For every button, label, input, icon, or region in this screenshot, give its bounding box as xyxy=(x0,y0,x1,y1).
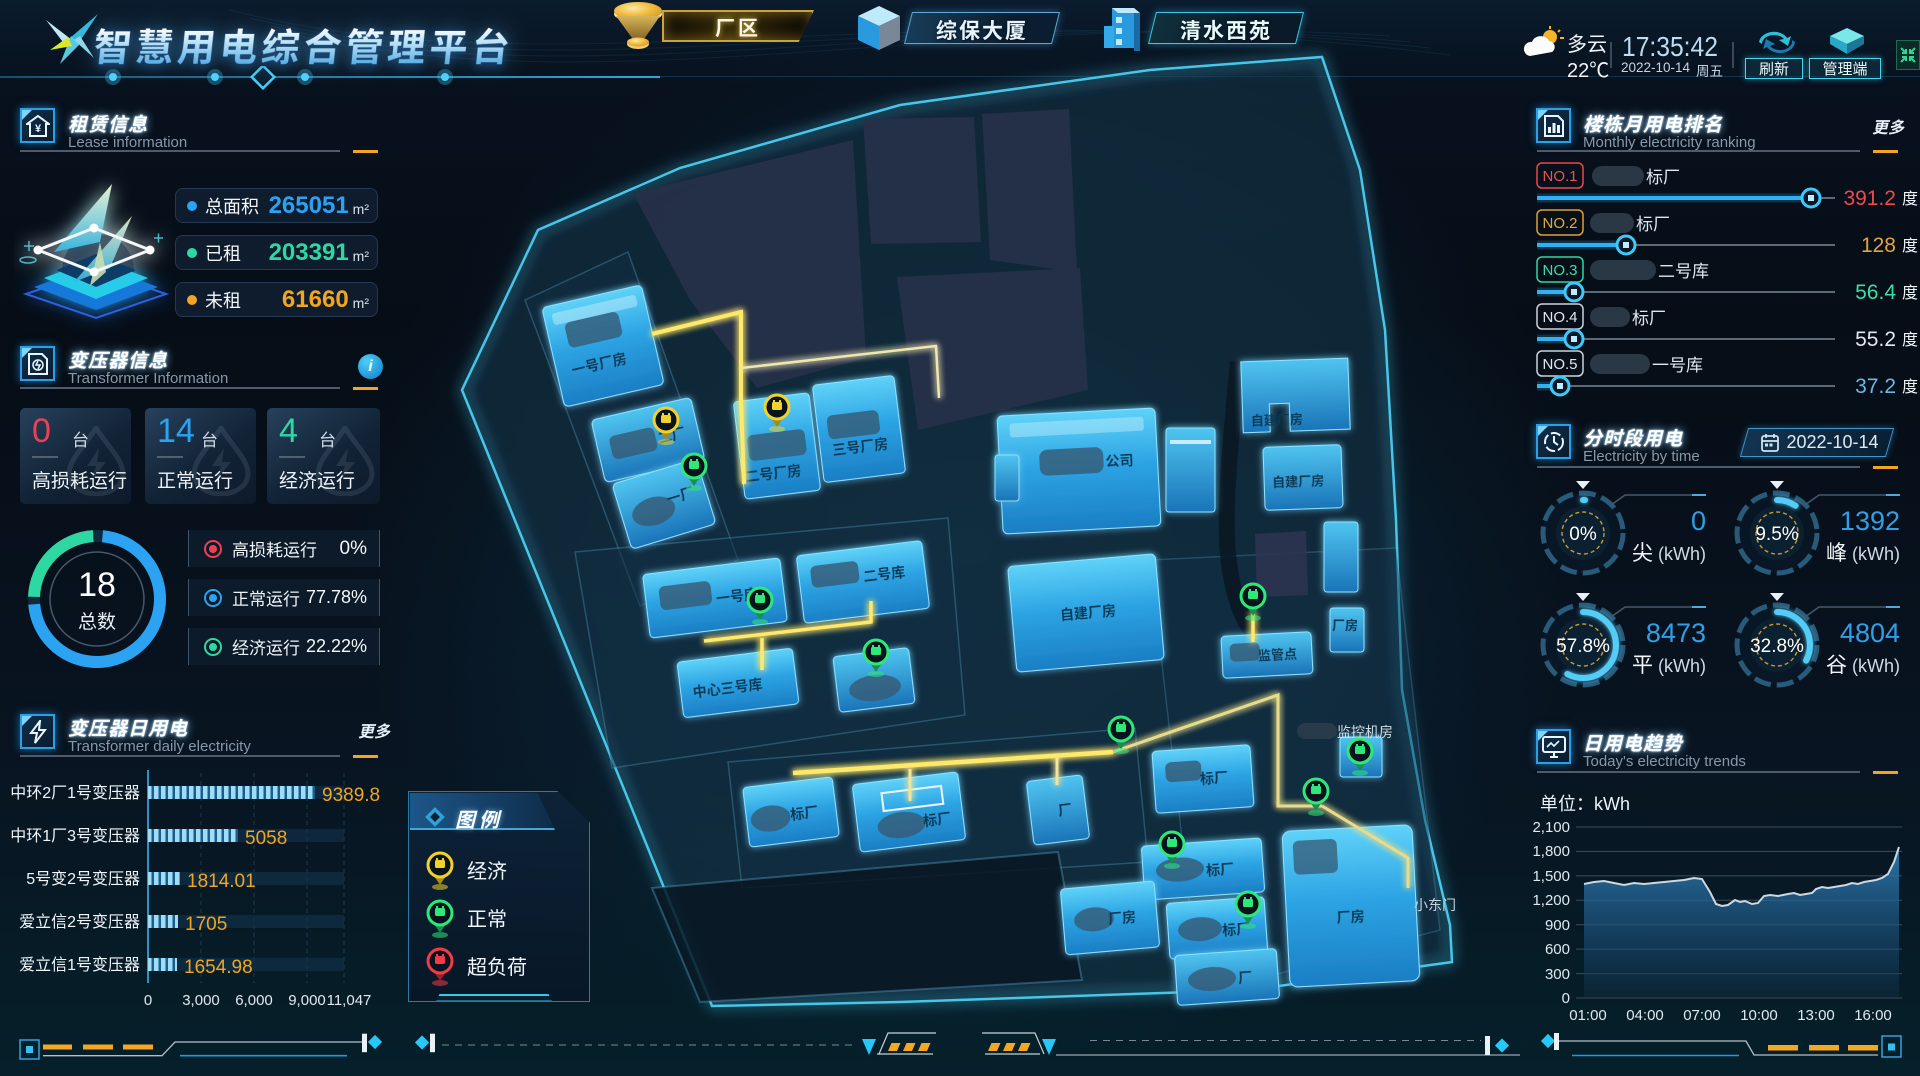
svg-text:11,047: 11,047 xyxy=(327,992,372,1009)
svg-text:标厂: 标厂 xyxy=(1199,769,1228,787)
svg-text:300: 300 xyxy=(1545,966,1570,983)
svg-text:57.8%: 57.8% xyxy=(1556,636,1610,657)
svg-text:度: 度 xyxy=(1902,331,1918,349)
svg-text:爱立信1号变压器: 爱立信1号变压器 xyxy=(19,956,140,974)
svg-text:总数: 总数 xyxy=(78,611,116,633)
svg-text:0: 0 xyxy=(144,992,152,1009)
svg-text:峰 (kWh): 峰 (kWh) xyxy=(1826,542,1900,565)
svg-text:标厂: 标厂 xyxy=(789,804,819,823)
svg-text:标厂: 标厂 xyxy=(1206,861,1235,879)
svg-text:标厂: 标厂 xyxy=(922,810,952,829)
svg-text:厂: 厂 xyxy=(1057,801,1073,819)
svg-text:6,000: 6,000 xyxy=(235,992,273,1009)
svg-text:9.5%: 9.5% xyxy=(1755,524,1798,545)
svg-text:度: 度 xyxy=(1902,378,1918,396)
svg-text:NO.2: NO.2 xyxy=(1542,215,1577,232)
svg-text:中环2厂1号变压器: 中环2厂1号变压器 xyxy=(10,784,140,802)
svg-text:NO.1: NO.1 xyxy=(1542,168,1577,185)
svg-text:128: 128 xyxy=(1861,234,1896,257)
svg-text:1,500: 1,500 xyxy=(1532,868,1570,885)
svg-text:1392: 1392 xyxy=(1840,506,1900,536)
svg-text:900: 900 xyxy=(1545,917,1570,934)
svg-text:1814.01: 1814.01 xyxy=(187,871,256,892)
svg-text:厂: 厂 xyxy=(1238,969,1253,986)
svg-text:度: 度 xyxy=(1902,190,1918,208)
svg-text:37.2: 37.2 xyxy=(1855,375,1896,398)
svg-text:自建厂房: 自建厂房 xyxy=(1251,412,1304,429)
svg-text:NO.3: NO.3 xyxy=(1542,262,1577,279)
svg-text:厂房: 厂房 xyxy=(1332,618,1358,633)
svg-text:自建厂房: 自建厂房 xyxy=(1272,473,1325,490)
svg-text:55.2: 55.2 xyxy=(1855,328,1896,351)
svg-text:600: 600 xyxy=(1545,941,1570,958)
svg-text:尖 (kWh): 尖 (kWh) xyxy=(1632,542,1706,565)
svg-text:2,100: 2,100 xyxy=(1532,819,1570,836)
svg-text:标厂: 标厂 xyxy=(1636,215,1670,234)
svg-text:5号变2号变压器: 5号变2号变压器 xyxy=(26,870,140,888)
svg-text:度: 度 xyxy=(1902,237,1918,255)
svg-text:1,200: 1,200 xyxy=(1532,892,1570,909)
svg-text:¥: ¥ xyxy=(34,123,41,135)
svg-text:度: 度 xyxy=(1902,284,1918,302)
svg-text:56.4: 56.4 xyxy=(1855,281,1896,304)
svg-text:一号库: 一号库 xyxy=(1652,356,1703,375)
svg-text:NO.5: NO.5 xyxy=(1542,356,1577,373)
svg-text:公司: 公司 xyxy=(1105,452,1134,469)
svg-text:小东门: 小东门 xyxy=(1414,897,1456,913)
svg-text:谷 (kWh): 谷 (kWh) xyxy=(1826,654,1900,677)
svg-text:1654.98: 1654.98 xyxy=(184,957,253,978)
svg-text:标厂: 标厂 xyxy=(1646,168,1680,187)
svg-text:中环1厂3号变压器: 中环1厂3号变压器 xyxy=(10,827,140,845)
svg-text:9389.8: 9389.8 xyxy=(322,785,380,806)
svg-text:二号库: 二号库 xyxy=(1658,262,1709,281)
svg-text:监控机房: 监控机房 xyxy=(1337,724,1393,740)
svg-text:NO.4: NO.4 xyxy=(1542,309,1577,326)
svg-text:18: 18 xyxy=(78,566,116,604)
svg-text:1705: 1705 xyxy=(185,914,227,935)
svg-text:8473: 8473 xyxy=(1646,618,1706,648)
svg-text:1,800: 1,800 xyxy=(1532,843,1570,860)
svg-text:0: 0 xyxy=(1562,990,1570,1007)
svg-text:平 (kWh): 平 (kWh) xyxy=(1632,654,1706,677)
svg-text:391.2: 391.2 xyxy=(1843,187,1896,210)
svg-text:3,000: 3,000 xyxy=(182,992,220,1009)
svg-text:标厂: 标厂 xyxy=(1632,309,1666,328)
svg-text:爱立信2号变压器: 爱立信2号变压器 xyxy=(19,913,140,931)
svg-text:0: 0 xyxy=(1691,506,1706,536)
svg-text:监管点: 监管点 xyxy=(1258,646,1298,663)
svg-text:5058: 5058 xyxy=(245,828,287,849)
svg-text:4804: 4804 xyxy=(1840,618,1900,648)
svg-text:厂房: 厂房 xyxy=(1336,908,1365,925)
svg-text:9,000: 9,000 xyxy=(288,992,326,1009)
svg-text:0%: 0% xyxy=(1569,524,1597,545)
svg-text:厂房: 厂房 xyxy=(1107,909,1136,927)
svg-text:32.8%: 32.8% xyxy=(1750,636,1804,657)
